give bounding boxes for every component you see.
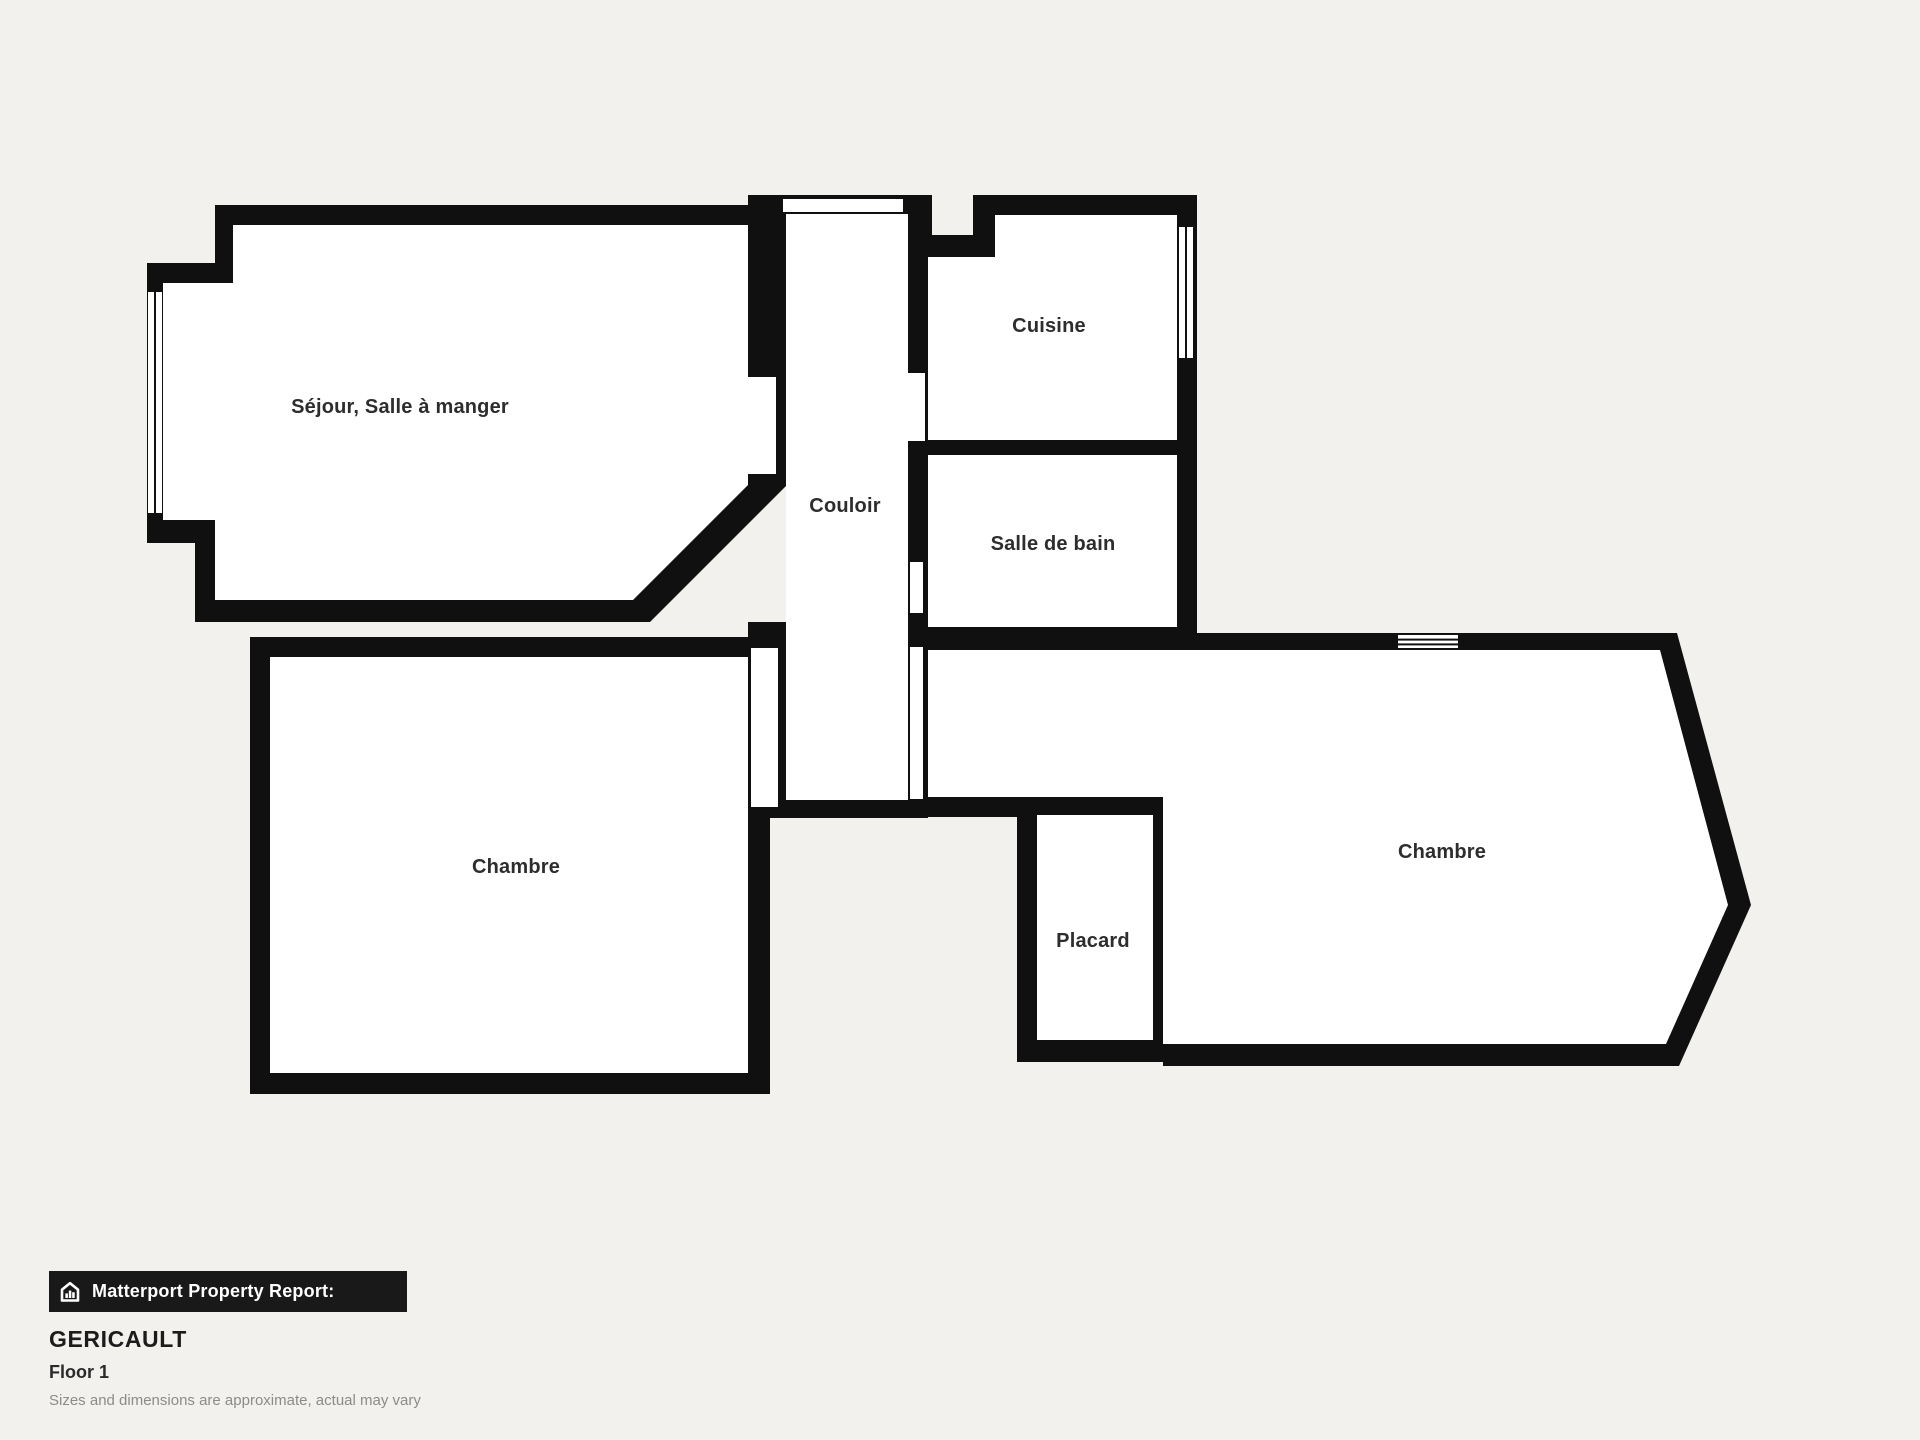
room-label-placard: Placard xyxy=(1056,930,1130,952)
property-name: GERICAULT xyxy=(49,1326,749,1353)
report-title-bar: Matterport Property Report: xyxy=(49,1271,407,1312)
room-label-chambre-right: Chambre xyxy=(1398,841,1486,863)
exterior-notch-entry xyxy=(932,195,973,235)
door-opening-cuisine xyxy=(908,373,925,441)
room-label-salle-de-bain: Salle de bain xyxy=(991,533,1116,555)
door-opening-corridor xyxy=(910,647,923,799)
door-opening-sejour xyxy=(748,377,776,474)
room-label-cuisine: Cuisine xyxy=(1012,315,1086,337)
door-opening-chambre-left xyxy=(751,648,778,807)
cuisine-window-icon xyxy=(1179,227,1193,358)
report-footer: Matterport Property Report: GERICAULT Fl… xyxy=(49,1271,749,1409)
floor-label: Floor 1 xyxy=(49,1362,749,1383)
door-opening-salle-de-bain xyxy=(910,562,923,613)
room-label-sejour: Séjour, Salle à manger xyxy=(291,396,509,418)
matterport-house-icon xyxy=(58,1280,82,1304)
room-label-chambre-left: Chambre xyxy=(472,856,560,878)
room-placard-floor xyxy=(1037,815,1153,1040)
disclaimer-text: Sizes and dimensions are approximate, ac… xyxy=(49,1392,749,1409)
bay-window-icon xyxy=(148,292,162,513)
corridor-floor xyxy=(928,650,1197,797)
floor-plan-canvas: Séjour, Salle à manger Couloir Cuisine S… xyxy=(0,0,1920,1440)
door-opening-entry xyxy=(783,199,903,212)
chambre-right-window-icon xyxy=(1398,635,1458,648)
floor-plan-page: Séjour, Salle à manger Couloir Cuisine S… xyxy=(0,0,1920,1440)
report-bar-title: Matterport Property Report: xyxy=(92,1281,334,1302)
room-label-couloir: Couloir xyxy=(809,495,880,517)
